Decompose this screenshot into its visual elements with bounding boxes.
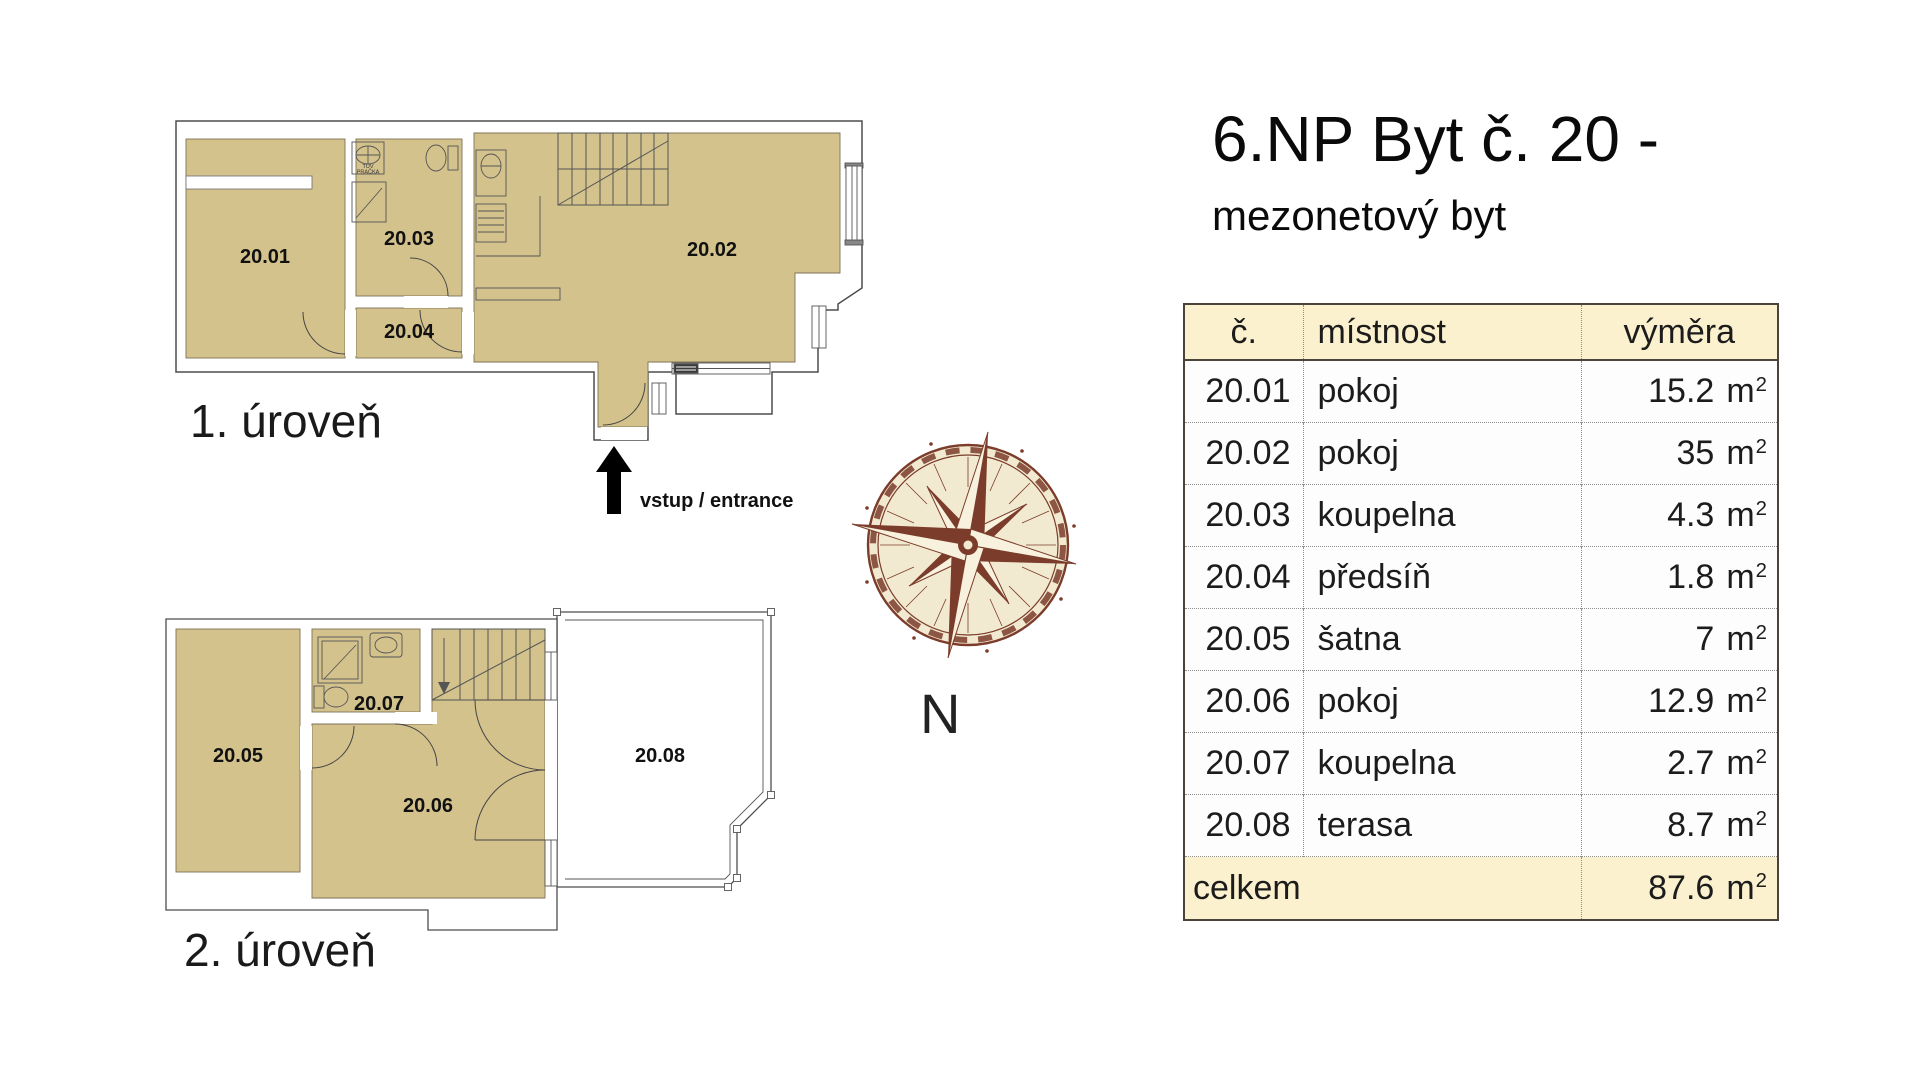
wall-slot [186,176,312,189]
room-2003-area [356,139,462,296]
header-room: místnost [1303,304,1581,360]
table-row: 20.02 pokoj 35m2 [1184,423,1778,485]
table-header-row: č. místnost výměra [1184,304,1778,360]
room-label-2006: 20.06 [403,795,453,817]
header-area: výměra [1581,304,1778,360]
table-row: 20.07 koupelna 2.7m2 [1184,733,1778,795]
cell-area: 15.2m2 [1581,360,1778,423]
cell-number: 20.03 [1184,485,1303,547]
cell-room: pokoj [1303,360,1581,423]
total-area: 87.6m2 [1581,857,1778,921]
north-label: N [920,682,960,745]
areas-table: č. místnost výměra 20.01 pokoj 15.2m2 20… [1183,303,1779,921]
table-total-row: celkem 87.6m2 [1184,857,1778,921]
header-number: č. [1184,304,1303,360]
cell-room: pokoj [1303,671,1581,733]
room-label-2005: 20.05 [213,745,263,767]
cell-room: koupelna [1303,485,1581,547]
table-row: 20.01 pokoj 15.2m2 [1184,360,1778,423]
level2-label: 2. úroveň [184,924,376,976]
cell-area: 7m2 [1581,609,1778,671]
page-subtitle: mezonetový byt [1212,192,1506,240]
cell-area: 8.7m2 [1581,795,1778,857]
entrance-arrow-icon [596,446,632,514]
cell-number: 20.05 [1184,609,1303,671]
cell-room: předsíň [1303,547,1581,609]
table-row: 20.06 pokoj 12.9m2 [1184,671,1778,733]
entrance-label: vstup / entrance [640,490,793,512]
floorplan-level2: 20.05 20.07 20.06 20.08 2. úroveň [166,609,775,977]
cell-area: 4.3m2 [1581,485,1778,547]
room-label-2007: 20.07 [354,693,404,715]
cell-number: 20.07 [1184,733,1303,795]
total-label: celkem [1184,857,1581,921]
cell-room: pokoj [1303,423,1581,485]
page: TUV PRAČKA 20.01 20.03 20.04 20.02 1. úr… [0,0,1920,1080]
cell-room: koupelna [1303,733,1581,795]
room-label-2002: 20.02 [687,239,737,261]
room-label-2001: 20.01 [240,246,290,268]
level1-label: 1. úroveň [190,395,382,447]
fixture-label-line2: PRAČKA [357,169,380,176]
cell-number: 20.01 [1184,360,1303,423]
room-label-2003: 20.03 [384,228,434,250]
page-title: 6.NP Byt č. 20 - [1212,104,1659,174]
room-areas: č. místnost výměra 20.01 pokoj 15.2m2 20… [1183,303,1779,921]
table-row: 20.03 koupelna 4.3m2 [1184,485,1778,547]
floorplan-level1: TUV PRAČKA 20.01 20.03 20.04 20.02 1. úr… [176,121,863,514]
cell-area: 1.8m2 [1581,547,1778,609]
cell-area: 35m2 [1581,423,1778,485]
cell-number: 20.06 [1184,671,1303,733]
cell-number: 20.04 [1184,547,1303,609]
cell-area: 12.9m2 [1581,671,1778,733]
room-label-2004: 20.04 [384,321,435,343]
room-label-2008: 20.08 [635,745,685,767]
cell-area: 2.7m2 [1581,733,1778,795]
cell-number: 20.08 [1184,795,1303,857]
table-row: 20.04 předsíň 1.8m2 [1184,547,1778,609]
table-row: 20.05 šatna 7m2 [1184,609,1778,671]
compass-rose: N [852,432,1076,745]
cell-room: terasa [1303,795,1581,857]
table-row: 20.08 terasa 8.7m2 [1184,795,1778,857]
cell-number: 20.02 [1184,423,1303,485]
cell-room: šatna [1303,609,1581,671]
